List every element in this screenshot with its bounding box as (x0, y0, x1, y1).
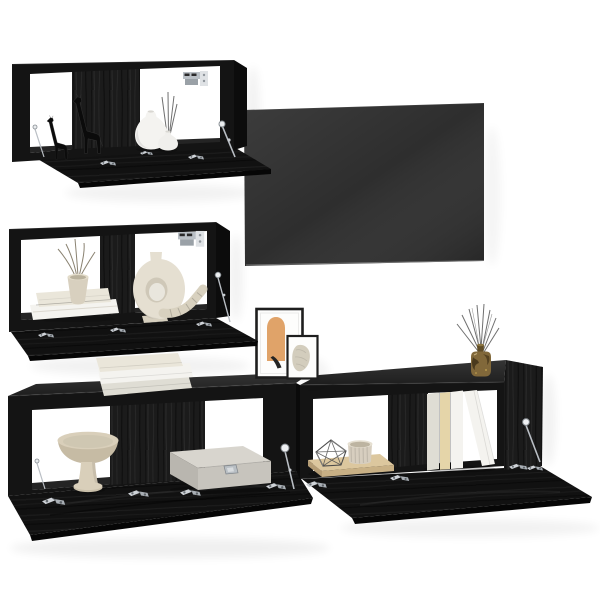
shadow-right-of-middle-cabinet (229, 234, 243, 322)
cabinet-side (234, 60, 247, 150)
stay-pivot (223, 294, 226, 297)
wall-bracket (178, 231, 204, 247)
lid-stay-knob (33, 125, 37, 129)
stay-pivot (289, 469, 292, 472)
wall-cabinet-middle (9, 222, 230, 332)
tv-screen (244, 103, 484, 266)
standing-book (427, 393, 439, 471)
pedestal-bowl-inner (63, 435, 113, 448)
artwork-orange-arch (267, 317, 285, 361)
box-clasp-inner (227, 467, 234, 472)
wall-bracket (183, 71, 208, 86)
lid-stay-knob (215, 272, 221, 278)
product-photo-canvas (0, 0, 600, 600)
cup-mouth (350, 442, 370, 448)
beige-vase-mouth (70, 275, 86, 279)
tv-stand-left (8, 372, 313, 541)
vase-rim (148, 110, 154, 112)
vase-small-rim (165, 131, 170, 133)
cabinet-side (216, 222, 230, 318)
opening-left (30, 72, 72, 153)
lid-stay-knob (523, 419, 530, 426)
divider-grain (388, 393, 428, 468)
bottle-sparkle (475, 372, 477, 374)
ring-vase-hole-light (149, 283, 165, 301)
divider-grain (72, 69, 140, 149)
stand-junction (296, 383, 300, 479)
scene-svg (0, 0, 600, 600)
lid-stay-knob-right (219, 121, 225, 127)
stay-pivot (227, 138, 230, 141)
shadow-right-of-tv (483, 126, 501, 266)
bottle-sparkle (485, 369, 487, 371)
picture-frames (257, 309, 330, 386)
bottle-neck-rim (477, 344, 484, 346)
standing-book-tan (440, 392, 450, 470)
standing-book (451, 391, 463, 470)
lid-stay-knob-right (281, 444, 289, 452)
lid-stay-knob (35, 459, 39, 463)
shadow-below-left-stand (10, 538, 330, 558)
wall-cabinet-top (12, 60, 271, 188)
tv-sheen (244, 103, 484, 266)
pedestal-bowl-base-top (74, 482, 103, 490)
